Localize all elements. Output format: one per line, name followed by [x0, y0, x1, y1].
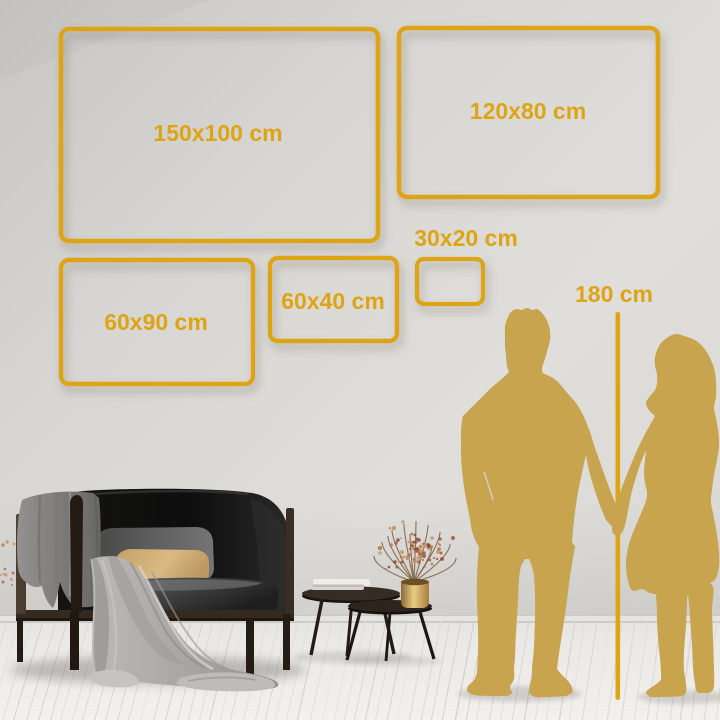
- svg-text:150x100 cm: 150x100 cm: [153, 120, 282, 146]
- svg-text:60x40 cm: 60x40 cm: [281, 288, 385, 314]
- svg-text:120x80 cm: 120x80 cm: [470, 98, 586, 124]
- svg-text:180 cm: 180 cm: [575, 281, 653, 307]
- svg-text:60x90 cm: 60x90 cm: [104, 309, 208, 335]
- svg-text:30x20 cm: 30x20 cm: [414, 225, 518, 251]
